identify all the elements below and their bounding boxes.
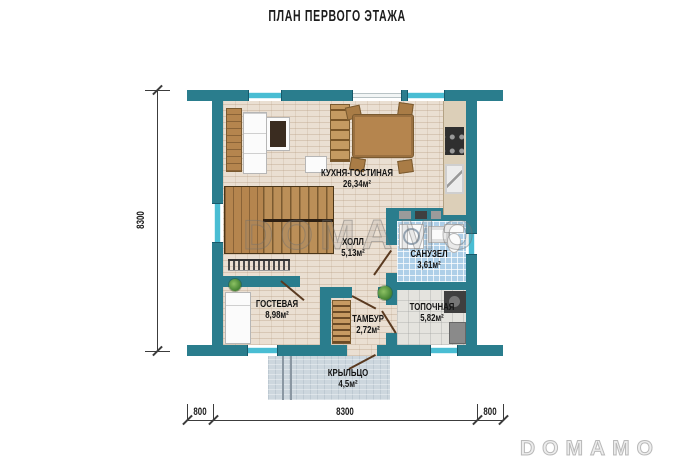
room-label-vestibule: ТАМБУР 2,72м²	[352, 314, 384, 336]
room-area: 26,34м²	[321, 179, 393, 190]
dimension-value-bottom-right: 800	[481, 406, 500, 418]
wardrobe	[226, 108, 242, 172]
window-bottom-boiler	[430, 345, 458, 356]
plant-icon	[229, 279, 241, 291]
room-label-kitchen-living: КУХНЯ-ГОСТИНАЯ 26,34м²	[321, 168, 393, 190]
room-name: ТОПОЧНАЯ	[410, 302, 455, 313]
dimension-value-bottom-left: 800	[191, 406, 210, 418]
vestibule-wardrobe	[332, 300, 351, 344]
dining-table	[352, 114, 414, 158]
dimension-line-left	[157, 90, 158, 352]
page-title-row: ПЛАН ПЕРВОГО ЭТАЖА	[0, 8, 674, 26]
room-name: КУХНЯ-ГОСТИНАЯ	[321, 168, 393, 179]
tv-unit	[266, 117, 290, 151]
page-title: ПЛАН ПЕРВОГО ЭТАЖА	[268, 8, 405, 26]
window-top-left	[248, 90, 282, 101]
room-label-guest: ГОСТЕВАЯ 8,98м²	[256, 299, 298, 321]
window-bottom-guest	[247, 345, 278, 356]
plant-icon	[378, 286, 392, 300]
room-label-porch: КРЫЛЬЦО 4,5м²	[328, 368, 368, 390]
partition-hall-right-lower	[386, 333, 397, 345]
partition-vestibule-top-a	[331, 287, 352, 298]
room-area: 5,82м²	[410, 313, 455, 324]
porch-step-line	[290, 356, 292, 400]
room-name: ТАМБУР	[352, 314, 384, 325]
room-area: 8,98м²	[256, 310, 298, 321]
room-name: КРЫЛЬЦО	[328, 368, 368, 379]
window-top-right	[407, 90, 445, 101]
partition-bathroom-boiler	[386, 282, 466, 290]
room-area: 4,5м²	[328, 379, 368, 390]
room-area: 3,61м²	[410, 260, 447, 271]
watermark-center: DOMAMO	[243, 211, 481, 259]
sofa	[243, 112, 267, 174]
wall-top	[187, 90, 503, 101]
patio-door-top	[352, 90, 402, 101]
radiator	[228, 259, 290, 271]
partition-vestibule-left	[320, 287, 331, 345]
room-area: 2,72м²	[352, 325, 384, 336]
utility-unit	[449, 322, 466, 344]
floor-plan-page: ПЛАН ПЕРВОГО ЭТАЖА	[0, 0, 674, 470]
kitchen-counter	[443, 101, 466, 215]
guest-bed	[225, 292, 251, 344]
kitchen-sink	[445, 164, 464, 194]
dimension-value-bottom-center: 8300	[250, 406, 440, 418]
room-name: ГОСТЕВАЯ	[256, 299, 298, 310]
tv-screen	[270, 121, 286, 147]
watermark-corner: DOMAMO	[520, 437, 660, 461]
room-label-boiler: ТОПОЧНАЯ 5,82м²	[410, 302, 455, 324]
dimension-value-left: 8300	[135, 204, 147, 236]
porch-step-line	[282, 356, 284, 400]
window-left-wall	[212, 203, 223, 243]
chair	[397, 159, 414, 174]
dimension-line-bottom	[187, 420, 504, 421]
stove	[445, 127, 464, 155]
